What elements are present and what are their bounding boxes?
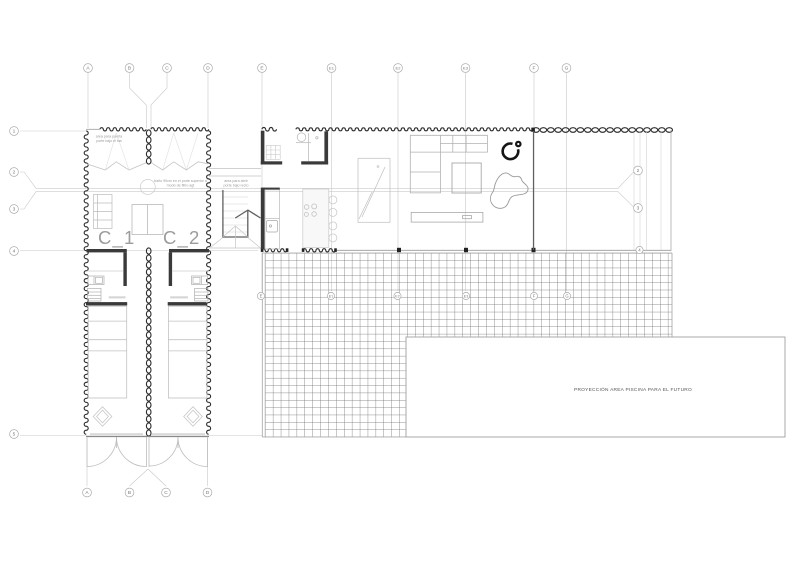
svg-text:E2: E2 — [396, 66, 402, 71]
svg-text:E1: E1 — [329, 295, 333, 299]
svg-text:G: G — [565, 294, 568, 299]
svg-text:C: C — [164, 490, 168, 496]
svg-text:porte bajo recto: porte bajo recto — [224, 183, 249, 187]
svg-text:E3: E3 — [464, 295, 468, 299]
svg-text:2: 2 — [637, 168, 640, 174]
svg-text:F: F — [533, 66, 536, 72]
svg-text:modo de filtro agt: modo de filtro agt — [167, 183, 195, 187]
svg-text:3: 3 — [637, 206, 640, 212]
svg-text:1: 1 — [13, 129, 16, 135]
svg-text:E: E — [260, 294, 263, 299]
svg-text:4: 4 — [13, 249, 16, 255]
svg-text:C: C — [165, 66, 169, 72]
svg-text:E2: E2 — [395, 295, 399, 299]
svg-text:E: E — [260, 66, 263, 72]
svg-text:B: B — [128, 490, 131, 496]
svg-text:E3: E3 — [463, 66, 469, 71]
svg-text:2: 2 — [13, 170, 16, 176]
svg-text:D: D — [206, 66, 210, 72]
svg-text:PROYECCIÓN AREA PISCINA PARA E: PROYECCIÓN AREA PISCINA PARA EL FUTURO — [574, 386, 692, 393]
svg-text:D: D — [206, 490, 210, 496]
svg-text:B: B — [128, 66, 131, 72]
svg-text:5: 5 — [13, 432, 16, 438]
svg-text:porte bajo el fas: porte bajo el fas — [96, 139, 122, 143]
svg-text:3: 3 — [13, 207, 16, 213]
svg-text:C_1: C_1 — [98, 227, 136, 249]
svg-text:C_2: C_2 — [163, 227, 201, 249]
svg-text:F: F — [533, 294, 536, 299]
svg-text:E1: E1 — [329, 66, 335, 71]
svg-text:G: G — [565, 66, 569, 72]
